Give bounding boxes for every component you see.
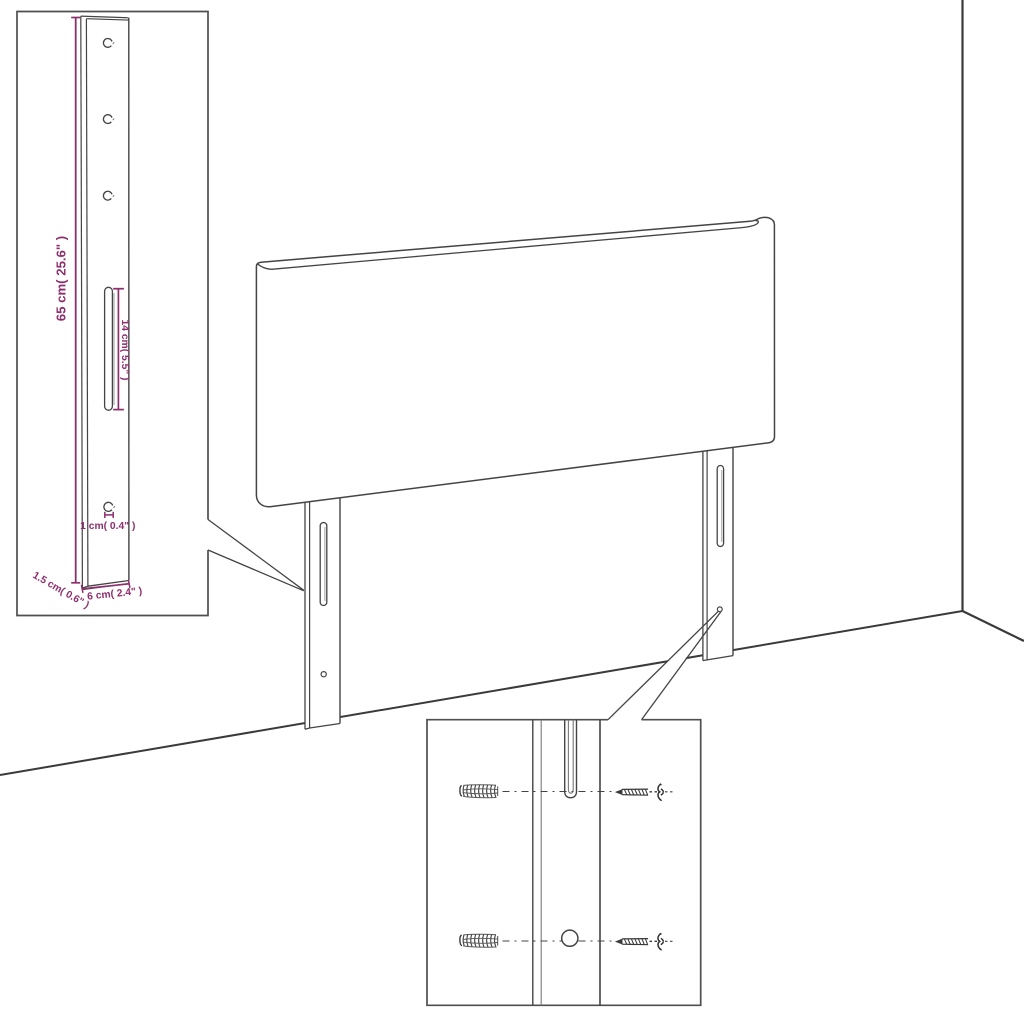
svg-text:14 cm( 5.5" ): 14 cm( 5.5" ) bbox=[119, 320, 130, 381]
svg-text:65 cm( 25.6" ): 65 cm( 25.6" ) bbox=[54, 236, 69, 321]
svg-text:1 cm( 0.4" ): 1 cm( 0.4" ) bbox=[80, 521, 135, 532]
